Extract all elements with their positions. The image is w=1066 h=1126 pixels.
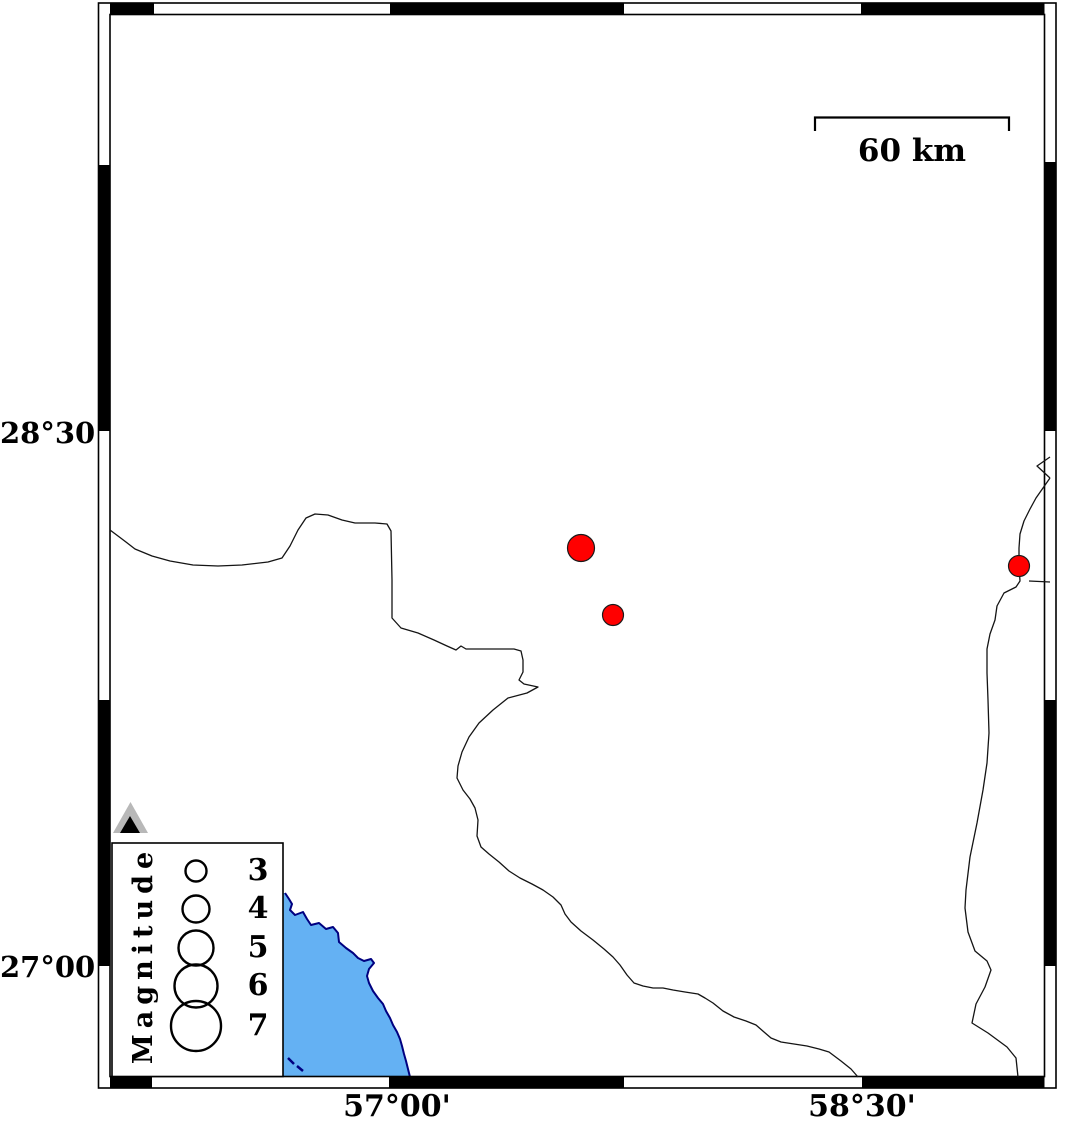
lon-label-58-30: 58°30' [792, 1089, 932, 1124]
lon-label-57-00: 57°00' [327, 1089, 467, 1124]
lat-label-27-00: 27°00' [0, 950, 92, 984]
legend-value-7: 7 [236, 1008, 280, 1043]
epicenter-markers [568, 535, 1030, 626]
station-triangle-icon [113, 802, 148, 833]
legend-value-6: 6 [236, 968, 280, 1003]
scale-bar-label: 60 km [842, 133, 982, 169]
legend-value-3: 3 [236, 853, 280, 888]
epicenter-marker-3 [1009, 556, 1030, 577]
map-canvas: 28°30' 27°00' 57°00' 58°30' 60 km Magnit… [0, 0, 1066, 1126]
legend-value-4: 4 [236, 891, 280, 926]
legend-title: Magnitude [128, 845, 164, 1065]
epicenter-marker-2 [603, 605, 624, 626]
lat-label-28-30: 28°30' [0, 416, 92, 450]
border-line-east [965, 457, 1050, 1077]
epicenter-marker-1 [568, 535, 595, 562]
legend-value-5: 5 [236, 930, 280, 965]
scale-bar [815, 118, 1009, 132]
